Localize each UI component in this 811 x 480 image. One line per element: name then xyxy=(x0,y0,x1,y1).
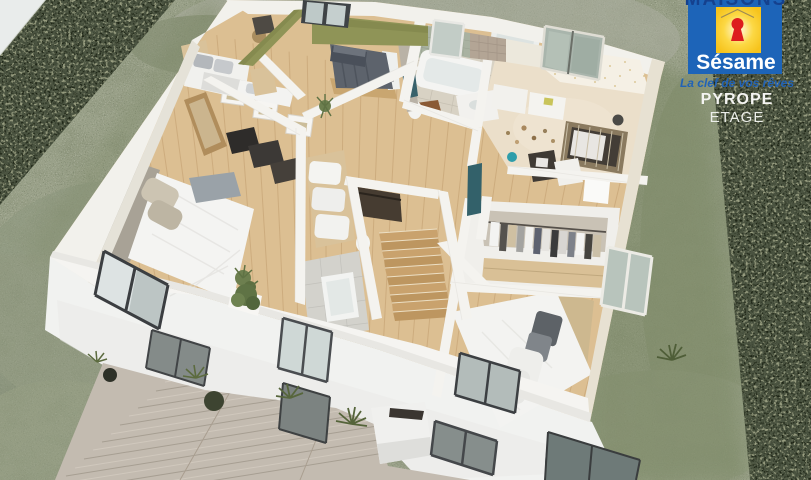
svg-text:ETAGE: ETAGE xyxy=(710,109,765,126)
svg-text:Sésame: Sésame xyxy=(696,51,775,74)
svg-text:PYROPE: PYROPE xyxy=(701,91,774,108)
svg-text:La clef de vos rêves: La clef de vos rêves xyxy=(680,76,794,90)
